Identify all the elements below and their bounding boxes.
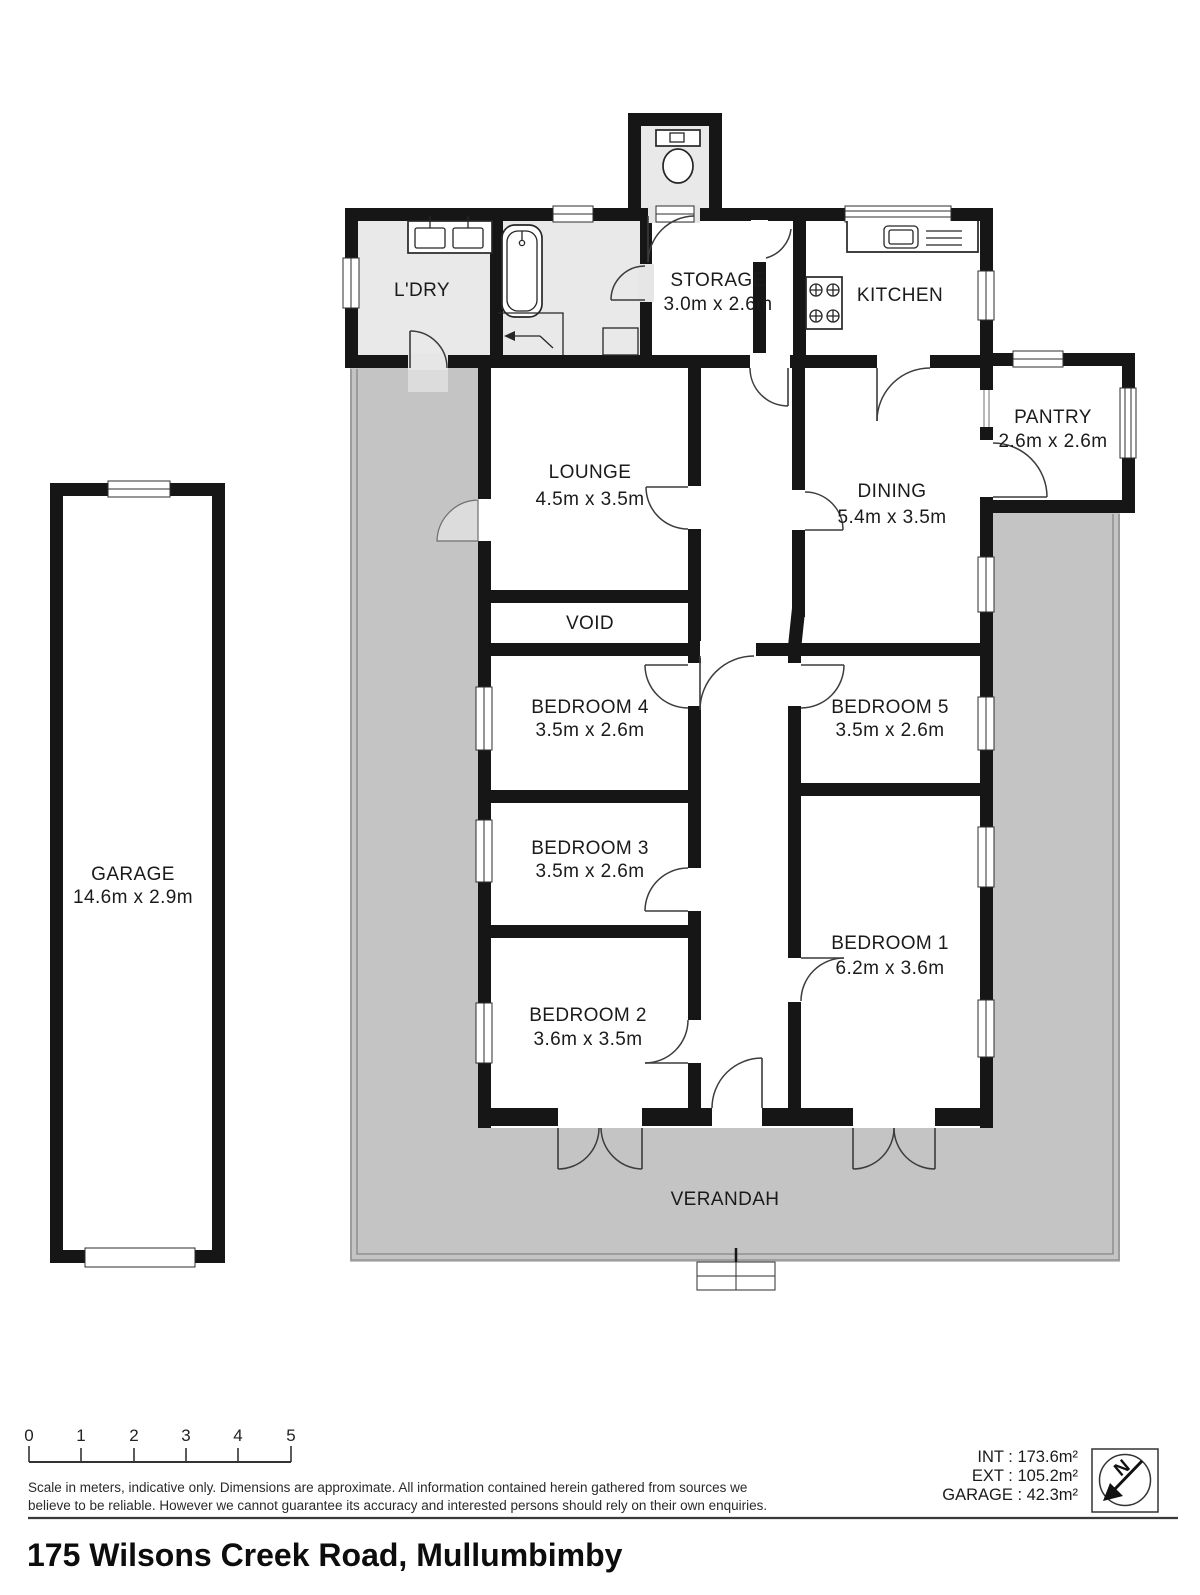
room-dims-dining: 5.4m x 3.5m [838, 507, 947, 528]
floorplan-page: L'DRY STORAGE 3.0m x 2.6m KITCHEN PANTRY… [0, 0, 1200, 1595]
area-ext: EXT : 105.2m² [972, 1467, 1079, 1485]
room-label-dining: DINING [858, 481, 927, 502]
window-bath [553, 206, 593, 222]
page-title: 175 Wilsons Creek Road, Mullumbimby [27, 1537, 623, 1573]
room-dims-lounge: 4.5m x 3.5m [536, 489, 645, 510]
room-label-garage: GARAGE [91, 864, 175, 885]
room-label-bedroom3: BEDROOM 3 [531, 838, 649, 859]
kitchen-bench-icon [847, 221, 978, 252]
floorplan-canvas: L'DRY STORAGE 3.0m x 2.6m KITCHEN PANTRY… [0, 0, 1200, 1595]
room-label-bedroom2: BEDROOM 2 [529, 1005, 647, 1026]
room-label-storage: STORAGE [670, 270, 765, 291]
window-bed1-east-lower [978, 1000, 994, 1057]
disclaimer-line-1: Scale in meters, indicative only. Dimens… [28, 1480, 747, 1495]
window-pantry-east [1120, 388, 1136, 458]
room-dims-bedroom3: 3.5m x 2.6m [536, 861, 645, 882]
window-bed4-west [476, 687, 492, 750]
laundry-sink-icon [408, 216, 492, 253]
area-garage: GARAGE : 42.3m² [942, 1486, 1078, 1504]
scale-tick-2: 2 [129, 1426, 138, 1445]
window-kitchen-east [978, 271, 994, 320]
area-summary: INT : 173.6m² EXT : 105.2m² GARAGE : 42.… [942, 1448, 1078, 1504]
room-dims-bedroom4: 3.5m x 2.6m [536, 720, 645, 741]
room-label-bedroom4: BEDROOM 4 [531, 697, 649, 718]
cooktop-icon [806, 277, 842, 329]
bathtub-icon [502, 225, 542, 317]
window-bed1-east-upper [978, 827, 994, 887]
room-label-lounge: LOUNGE [549, 462, 632, 483]
room-dims-garage: 14.6m x 2.9m [73, 887, 193, 908]
window-dining-east [978, 557, 994, 612]
room-label-pantry: PANTRY [1014, 407, 1092, 428]
room-dims-storage: 3.0m x 2.6m [664, 294, 773, 315]
scale-bar: 0 1 2 3 4 5 [24, 1426, 295, 1462]
window-pantry-top [1013, 351, 1063, 367]
window-pantry-west [980, 390, 993, 427]
scale-tick-1: 1 [76, 1426, 85, 1445]
window-ldry-west [343, 258, 359, 308]
scale-tick-3: 3 [181, 1426, 190, 1445]
room-dims-bedroom1: 6.2m x 3.6m [836, 958, 945, 979]
room-label-bedroom5: BEDROOM 5 [831, 697, 949, 718]
room-dims-bedroom2: 3.6m x 3.5m [534, 1029, 643, 1050]
room-dims-pantry: 2.6m x 2.6m [999, 431, 1108, 452]
disclaimer-line-2: believe to be reliable. However we canno… [28, 1498, 767, 1513]
room-label-bedroom1: BEDROOM 1 [831, 933, 949, 954]
scale-tick-4: 4 [233, 1426, 242, 1445]
window-bed2-west [476, 1003, 492, 1063]
window-bed5-east [978, 697, 994, 750]
room-label-verandah: VERANDAH [671, 1189, 780, 1210]
room-label-ldry: L'DRY [394, 280, 450, 301]
room-label-void: VOID [566, 613, 614, 634]
window-kitchen-top [845, 206, 951, 222]
window-garage-top [108, 481, 170, 497]
room-dims-bedroom5: 3.5m x 2.6m [836, 720, 945, 741]
window-bed3-west [476, 820, 492, 882]
room-label-kitchen: KITCHEN [857, 285, 943, 306]
scale-tick-5: 5 [286, 1426, 295, 1445]
scale-tick-0: 0 [24, 1426, 33, 1445]
compass-icon: N [1092, 1449, 1158, 1512]
area-int: INT : 173.6m² [977, 1448, 1078, 1466]
